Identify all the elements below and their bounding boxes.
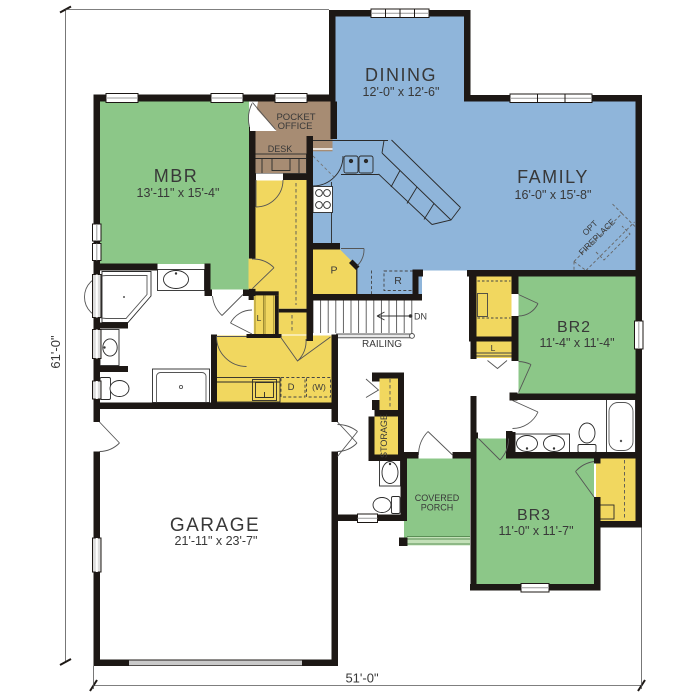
svg-text:MBR: MBR (154, 166, 199, 186)
svg-text:11'-0" x 11'-7": 11'-0" x 11'-7" (498, 524, 573, 538)
svg-text:13'-11" x 15'-4": 13'-11" x 15'-4" (137, 186, 220, 200)
svg-text:61'-0": 61'-0" (48, 335, 63, 369)
svg-text:R: R (394, 275, 402, 287)
svg-text:12'-0" x 12'-6": 12'-0" x 12'-6" (363, 85, 440, 99)
svg-text:DN: DN (414, 312, 427, 322)
svg-text:STORAGE: STORAGE (379, 414, 389, 458)
svg-text:DINING: DINING (365, 65, 437, 85)
svg-text:RAILING: RAILING (362, 339, 402, 350)
svg-text:P: P (330, 265, 337, 277)
svg-text:OFFICE: OFFICE (278, 121, 313, 132)
svg-text:GARAGE: GARAGE (170, 515, 260, 536)
svg-text:51'-0": 51'-0" (345, 671, 379, 686)
svg-text:PORCH: PORCH (421, 503, 454, 513)
svg-text:COVERED: COVERED (415, 493, 460, 503)
svg-text:D: D (288, 382, 295, 393)
svg-text:L: L (257, 313, 262, 323)
svg-text:11'-4" x 11'-4": 11'-4" x 11'-4" (539, 336, 614, 350)
svg-text:(W): (W) (312, 382, 326, 392)
svg-text:FAMILY: FAMILY (517, 167, 589, 187)
svg-text:21'-11" x 23'-7": 21'-11" x 23'-7" (175, 534, 258, 548)
svg-text:L: L (491, 343, 496, 353)
svg-text:16'-0" x 15'-8": 16'-0" x 15'-8" (515, 188, 592, 202)
svg-text:BR2: BR2 (557, 319, 591, 336)
svg-text:BR3: BR3 (517, 507, 551, 524)
svg-text:DESK: DESK (268, 144, 293, 154)
